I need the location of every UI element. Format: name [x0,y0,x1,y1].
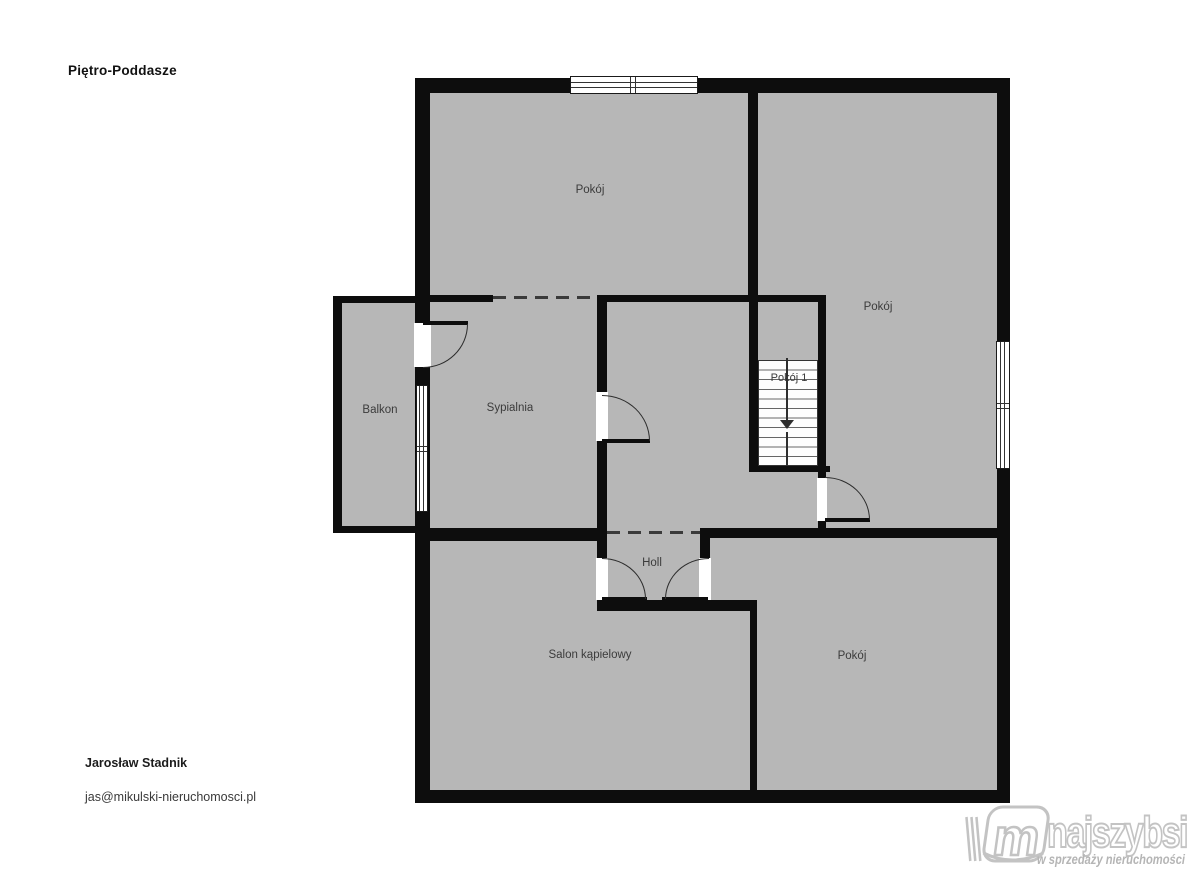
window-pane-line [419,386,420,511]
plan-title: Piętro-Poddasze [68,63,177,78]
room-label-balkon: Balkon [362,404,397,416]
room-label-pokoj-bottom: Pokój [838,650,867,662]
window-right [996,341,1010,469]
window-mullion [630,77,631,93]
room-label-holl: Holl [642,557,662,569]
wall-outer-bottom [415,790,1010,803]
wall-bedroom-top [430,295,493,302]
window-pane-line [571,82,697,83]
wall-bedroom-bottom [415,528,607,541]
brand-logo: m najszybsi w sprzedaży nieruchomości [955,799,1195,877]
wall-balcony-left [333,296,342,533]
window-mullion [635,77,636,93]
window-top [570,76,698,94]
wall-balcony-top [333,296,417,303]
wall-holl-bottom [597,600,757,611]
window-mullion [417,446,427,447]
window-pane-line [1004,342,1005,468]
wall-balcony-bottom [333,526,418,533]
window-mullion [417,451,427,452]
wall-hall-top [597,295,826,302]
room-label-pokoj-right: Pokój [864,301,893,313]
logo-tagline-text: w sprzedaży nieruchomości [1037,852,1185,867]
window-pane-line [571,87,697,88]
stair-center-line [786,432,788,466]
dashed-opening-bedroom [493,296,597,299]
stair-arrow-head [780,420,794,429]
room-label-salon-kapielowy: Salon kąpielowy [548,649,631,661]
wall-outer-top [415,78,1010,93]
main-floor-area [415,78,1010,803]
window-mullion [997,408,1009,409]
window-mullion [997,403,1009,404]
wall-stair-left [749,302,758,472]
room-label-pokoj-1: Pokój 1 [771,372,808,384]
contact-email: jas@mikulski-nieruchomosci.pl [85,790,256,804]
stair-arrow-line [786,358,788,420]
wall-divider-top-rooms [748,93,758,302]
logo-brand-text: najszybsi [1047,808,1187,857]
window-pane-line [423,386,424,511]
window-pane-line [1000,342,1001,468]
logo-monogram-letter: m [989,809,1043,867]
wall-bottom-room-left [750,607,757,790]
room-label-sypialnia: Sypialnia [487,402,534,414]
contact-name: Jarosław Stadnik [85,756,187,770]
window-balcony [416,385,428,512]
wall-bottom-room-top [700,528,1010,538]
wall-stair-bottom [749,466,830,472]
room-label-pokoj-top: Pokój [576,184,605,196]
dashed-opening-holl [607,531,700,534]
